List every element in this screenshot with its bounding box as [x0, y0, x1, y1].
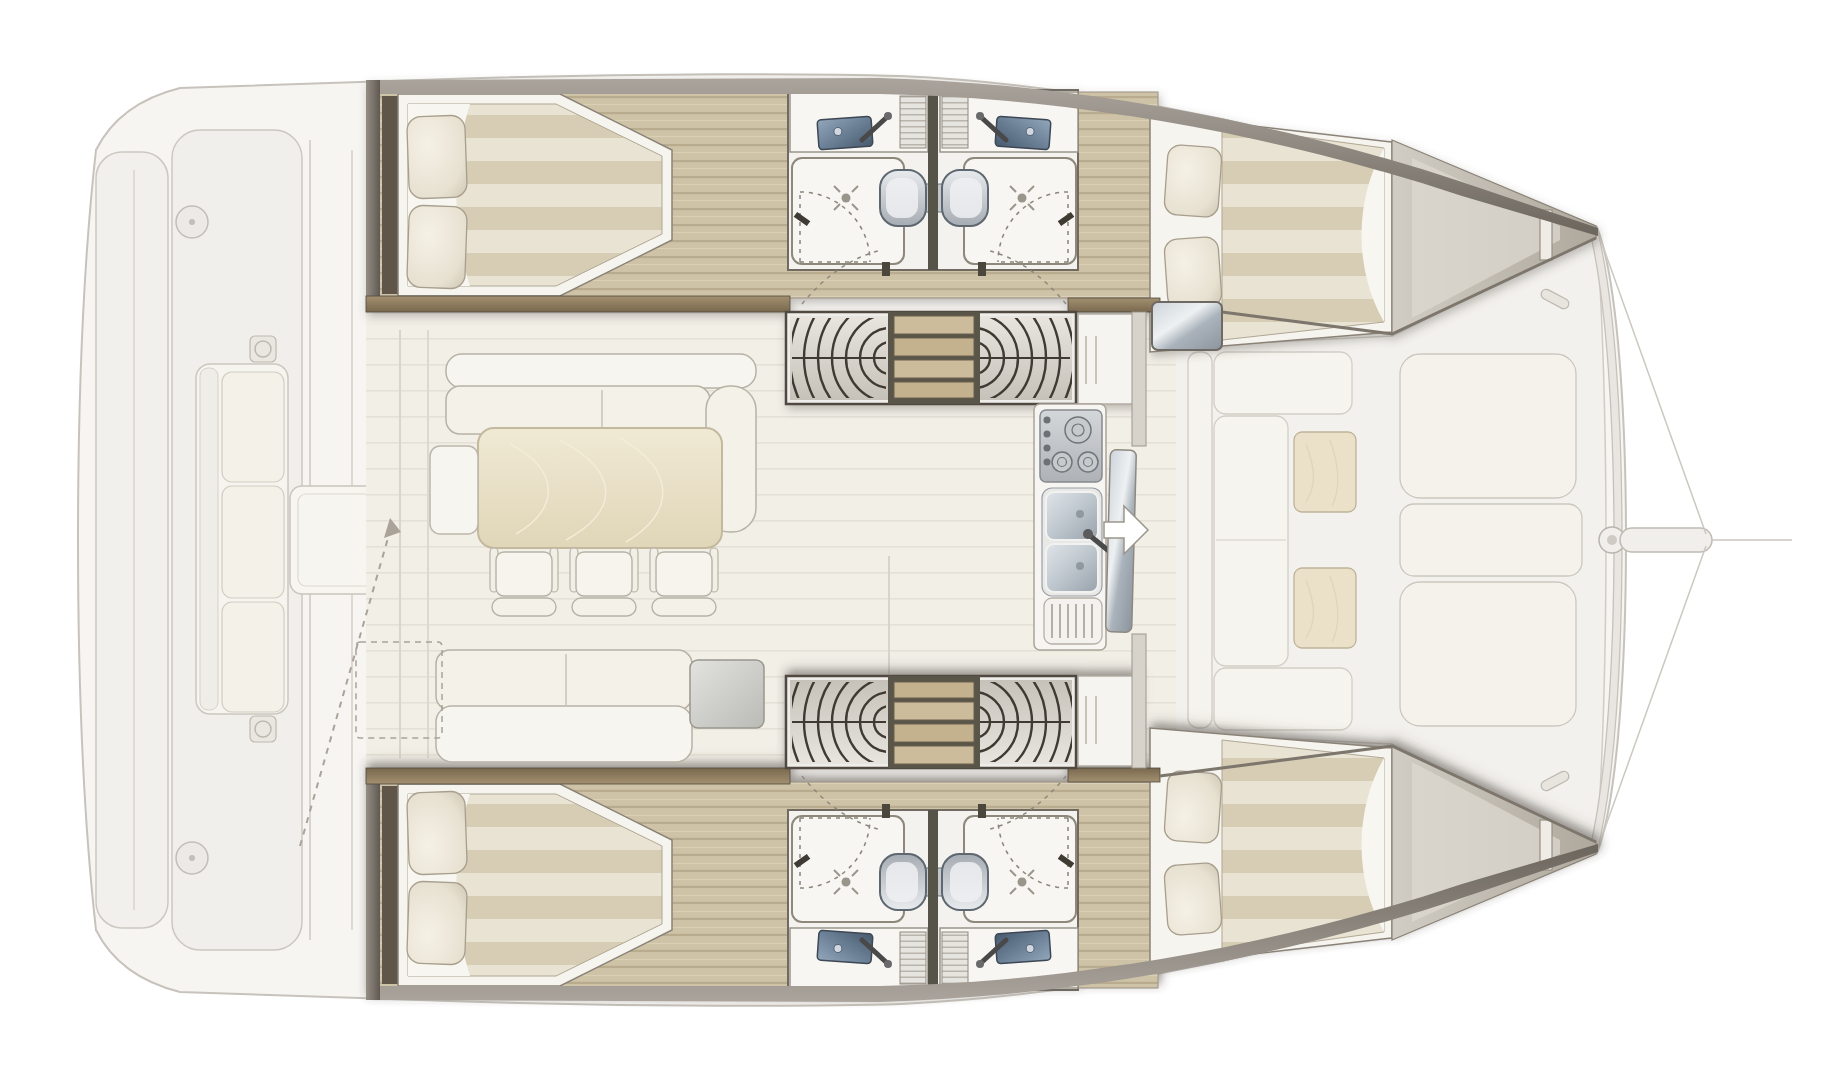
forward-window-panel — [1152, 302, 1222, 350]
catamaran-floor-plan — [0, 0, 1836, 1080]
head-door-hinge — [882, 262, 890, 276]
glossy-sideboard-panel — [690, 660, 764, 728]
cockpit-sofa — [196, 364, 288, 714]
pillow — [1164, 144, 1223, 218]
floor-plan-canvas — [0, 0, 1836, 1080]
berth-headboard — [382, 96, 398, 294]
pillow — [407, 115, 468, 199]
chair — [490, 548, 558, 616]
dining-chairs — [490, 548, 718, 616]
dining-table — [478, 428, 722, 548]
deck-hatch-dot — [189, 855, 195, 861]
chair — [650, 548, 718, 616]
toilet-icon — [880, 170, 932, 226]
central-wood-steps — [888, 312, 980, 404]
transom-steps — [96, 152, 168, 928]
hull-inner-wall-wood — [1068, 298, 1160, 312]
heads-partition-wall — [928, 90, 938, 270]
chair — [570, 548, 638, 616]
galley-sink-icon — [1042, 488, 1110, 596]
faucet-head — [884, 112, 892, 120]
pillow — [407, 205, 468, 289]
deck-hatch-dot — [189, 219, 195, 225]
vanity-cabinet — [900, 96, 926, 148]
bowsprit — [1620, 528, 1712, 552]
aft-sofa — [436, 650, 692, 762]
sunpads — [1400, 354, 1582, 726]
sink-drain-dot — [834, 127, 843, 136]
sink-basin-icon — [817, 116, 873, 150]
pillow — [1164, 236, 1223, 310]
stove-icon — [1040, 410, 1102, 482]
stair-side-shelf — [1078, 314, 1136, 404]
foredeck-table — [1294, 568, 1356, 648]
side-bench — [430, 446, 478, 534]
galley — [1034, 404, 1110, 650]
winch-pad — [250, 716, 276, 742]
beam-fitting-dot — [1607, 535, 1617, 545]
sink-drainer-icon — [1044, 598, 1102, 644]
hull-inner-wall-wood — [366, 296, 790, 312]
winch-pad — [250, 336, 276, 362]
cabin-aft-wall — [366, 80, 380, 312]
foredeck-table — [1294, 432, 1356, 512]
